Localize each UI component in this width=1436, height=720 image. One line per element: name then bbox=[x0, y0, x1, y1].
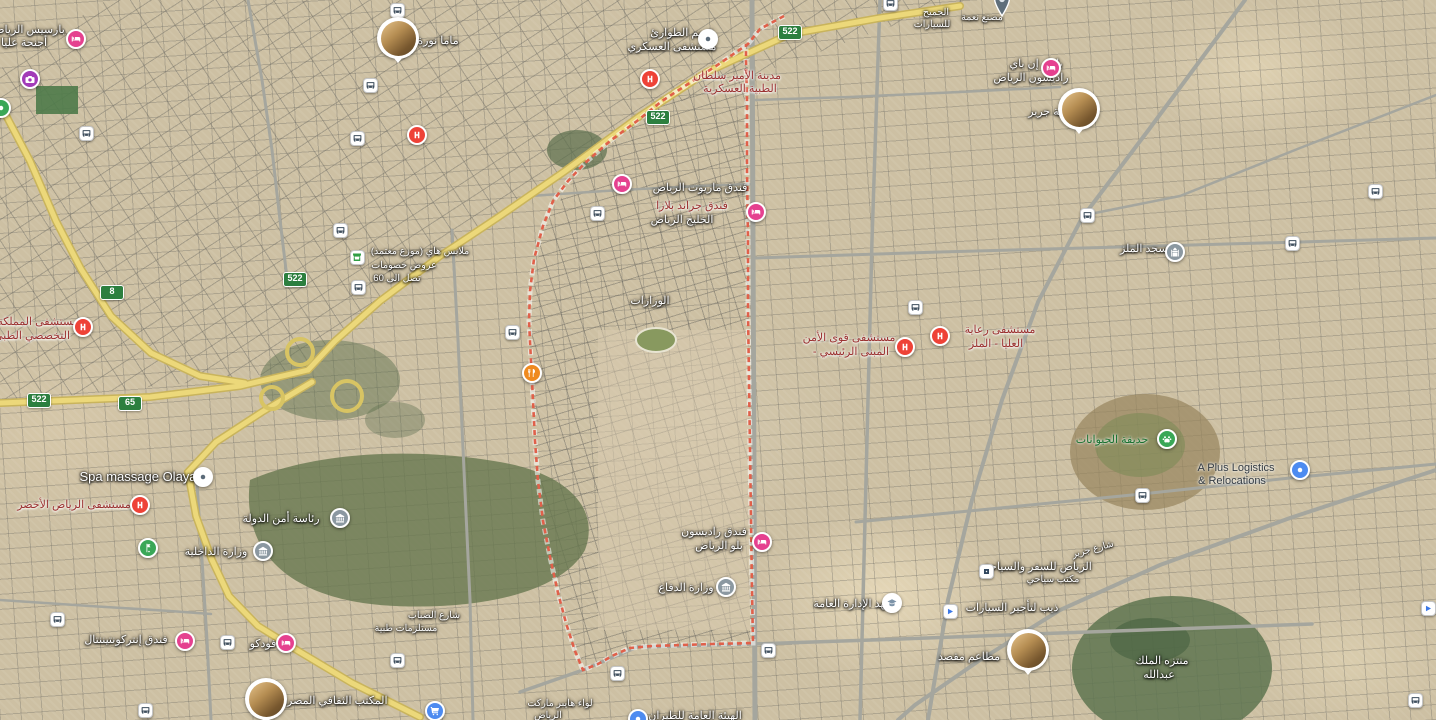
hospital-marker[interactable] bbox=[640, 69, 660, 89]
road-horizontal-northeast bbox=[753, 87, 1060, 100]
bus-stop-marker[interactable] bbox=[220, 635, 235, 650]
bus-icon bbox=[885, 0, 896, 9]
bus-stop-marker[interactable] bbox=[350, 131, 365, 146]
dot-icon bbox=[632, 713, 644, 720]
map-label: تصل الى 60 bbox=[373, 274, 420, 284]
bus-icon bbox=[507, 327, 518, 338]
hospital-h-icon bbox=[134, 499, 146, 511]
map-pin-icon bbox=[991, 0, 1013, 18]
map-label: ذيب لتأجير السيارات bbox=[966, 602, 1059, 614]
travel-marker[interactable] bbox=[979, 564, 994, 579]
bus-stop-marker[interactable] bbox=[79, 126, 94, 141]
bus-icon bbox=[81, 128, 92, 139]
hospital-h-icon bbox=[899, 341, 911, 353]
photo-marker[interactable] bbox=[1058, 88, 1100, 130]
bluedot-marker[interactable] bbox=[1290, 460, 1310, 480]
graduation-cap-icon bbox=[886, 597, 898, 609]
map-label: وزارة الداخلية bbox=[185, 546, 248, 558]
cursor-marker[interactable] bbox=[1421, 601, 1436, 616]
bus-stop-marker[interactable] bbox=[505, 325, 520, 340]
map-label: الطبية العسكرية bbox=[703, 83, 777, 95]
bus-icon bbox=[1410, 695, 1421, 706]
bus-icon bbox=[52, 614, 63, 625]
map-label: Spa massage Olaya bbox=[79, 470, 196, 484]
stadium bbox=[636, 328, 676, 352]
map-label: ملابس هاي (موزع معتمد) bbox=[371, 247, 469, 257]
bus-stop-marker[interactable] bbox=[610, 666, 625, 681]
route-shield-522: 522 bbox=[646, 110, 670, 125]
bus-stop-marker[interactable] bbox=[351, 280, 366, 295]
map-label: حديقة الحيوانات bbox=[1076, 434, 1149, 446]
dot-icon bbox=[197, 471, 209, 483]
bus-icon bbox=[592, 208, 603, 219]
restaurant-marker[interactable] bbox=[522, 363, 542, 383]
bus-stop-marker[interactable] bbox=[333, 223, 348, 238]
road-horizontal-southwest bbox=[0, 600, 211, 614]
navigation-arrow-icon bbox=[945, 606, 956, 617]
map-label: مستلزمات طبية bbox=[375, 624, 438, 634]
bus-icon bbox=[612, 668, 623, 679]
bus-stop-marker[interactable] bbox=[138, 703, 153, 718]
dot-icon bbox=[702, 33, 714, 45]
hospital-marker[interactable] bbox=[73, 317, 93, 337]
bus-stop-marker[interactable] bbox=[1080, 208, 1095, 223]
hospital-h-icon bbox=[934, 330, 946, 342]
bus-stop-marker[interactable] bbox=[1368, 184, 1383, 199]
bus-icon bbox=[1287, 238, 1298, 249]
golf-flag-icon bbox=[142, 542, 154, 554]
hospital-marker[interactable] bbox=[407, 125, 427, 145]
map-label: لواء هايبر ماركت bbox=[527, 699, 592, 709]
government-building-icon bbox=[334, 512, 346, 524]
photo-thumbnail bbox=[1062, 92, 1097, 127]
bus-icon bbox=[335, 225, 346, 236]
storefront-icon bbox=[351, 251, 363, 263]
whitepoi-marker[interactable] bbox=[698, 29, 718, 49]
whitepoi-marker[interactable] bbox=[193, 467, 213, 487]
bus-stop-marker[interactable] bbox=[908, 300, 923, 315]
bus-stop-marker[interactable] bbox=[883, 0, 898, 11]
road-vertical-west bbox=[196, 468, 211, 720]
map-label: فندق جراند بلازا bbox=[656, 200, 728, 212]
travel-agency-icon bbox=[981, 566, 992, 577]
bus-stop-marker[interactable] bbox=[363, 78, 378, 93]
cart-marker[interactable] bbox=[425, 701, 445, 720]
bus-stop-marker[interactable] bbox=[1408, 693, 1423, 708]
bus-stop-marker[interactable] bbox=[1285, 236, 1300, 251]
bus-icon bbox=[1370, 186, 1381, 197]
bus-stop-marker[interactable] bbox=[590, 206, 605, 221]
map-label: مستشفى قوى الأمن bbox=[803, 332, 896, 344]
photo-marker[interactable] bbox=[245, 678, 287, 720]
map-label: رئاسة أمن الدولة bbox=[242, 513, 319, 525]
bus-icon bbox=[392, 5, 403, 16]
photo-thumbnail bbox=[1011, 633, 1046, 668]
photo-marker[interactable] bbox=[377, 17, 419, 59]
map-label: الجميح bbox=[923, 8, 949, 18]
government-building-icon bbox=[257, 545, 269, 557]
hotel-marker[interactable] bbox=[276, 633, 296, 653]
map-label: المكتب الثقافي المصري bbox=[278, 695, 387, 707]
bed-icon bbox=[1045, 62, 1057, 74]
map-label: مستشفى رعاية bbox=[965, 324, 1036, 336]
bed-icon bbox=[179, 635, 191, 647]
mosque-marker[interactable] bbox=[1165, 242, 1185, 262]
bus-icon bbox=[352, 133, 363, 144]
road-diagonal-topright bbox=[1090, 95, 1436, 214]
road-vertical-east bbox=[860, 0, 880, 720]
route-shield-65: 65 bbox=[118, 396, 142, 411]
map-label: مطاعم مقصد bbox=[938, 651, 1000, 663]
golf-marker[interactable] bbox=[138, 538, 158, 558]
paw-icon bbox=[1161, 433, 1173, 445]
map-label: & Relocations bbox=[1198, 475, 1266, 487]
roads-and-terrain-layer bbox=[0, 0, 1436, 720]
shopping-cart-icon bbox=[429, 705, 441, 717]
bus-icon bbox=[1082, 210, 1093, 221]
photo-thumbnail bbox=[249, 682, 284, 717]
bus-icon bbox=[222, 637, 233, 648]
map-label: بلو الرياض bbox=[695, 540, 743, 552]
hotel-marker[interactable] bbox=[746, 202, 766, 222]
map-label: مكتب سياحي bbox=[1027, 575, 1080, 585]
government-building-icon bbox=[720, 581, 732, 593]
highway-522-casing bbox=[308, 6, 960, 370]
route-shield-8: 8 bbox=[100, 285, 124, 300]
bed-icon bbox=[750, 206, 762, 218]
route-shield-522: 522 bbox=[778, 25, 802, 40]
map-label: - المبنى الرئيسي bbox=[813, 346, 889, 358]
hospital-h-icon bbox=[411, 129, 423, 141]
map-label: منتزه الملك bbox=[1135, 655, 1188, 667]
gov-marker[interactable] bbox=[330, 508, 350, 528]
gov-marker[interactable] bbox=[253, 541, 273, 561]
map-label: شارع الضباب bbox=[408, 611, 460, 621]
hospital-marker[interactable] bbox=[930, 326, 950, 346]
map-label: مدينة الأمير سلطان bbox=[693, 70, 781, 82]
road-malaz-street bbox=[755, 238, 1436, 258]
hotel-marker[interactable] bbox=[175, 631, 195, 651]
map-label: العليا - الملز bbox=[969, 338, 1023, 350]
bus-stop-marker[interactable] bbox=[50, 612, 65, 627]
map-label: الرياض للسفر والسياحة bbox=[984, 561, 1092, 573]
interchange-greenery-2 bbox=[365, 402, 425, 438]
hotel-marker[interactable] bbox=[612, 174, 632, 194]
bed-icon bbox=[280, 637, 292, 649]
photo-marker[interactable] bbox=[1007, 629, 1049, 671]
hospital-h-icon bbox=[644, 73, 656, 85]
map-label: عبدالله bbox=[1143, 669, 1175, 681]
highway-522 bbox=[308, 6, 960, 370]
store-marker[interactable] bbox=[350, 250, 365, 265]
dot-icon bbox=[1294, 464, 1306, 476]
map-label: الرياض bbox=[534, 711, 562, 720]
map-label: فندق إنتركونتيننتال bbox=[84, 634, 167, 646]
hotel-marker[interactable] bbox=[1041, 58, 1061, 78]
map-label: فودكو bbox=[250, 638, 277, 650]
mosque-icon bbox=[1169, 246, 1181, 258]
bus-icon bbox=[763, 645, 774, 656]
cursor-marker[interactable] bbox=[943, 604, 958, 619]
map-label: ماما نورة bbox=[417, 35, 458, 47]
hospital-marker[interactable] bbox=[895, 337, 915, 357]
bus-stop-marker[interactable] bbox=[1135, 488, 1150, 503]
map-label: مستشفى الرياض الأخضر bbox=[17, 499, 131, 511]
camera-marker[interactable] bbox=[20, 69, 40, 89]
map-label: أجنحة عليا bbox=[1, 37, 47, 49]
map-label: التخصصي الطبي bbox=[0, 330, 70, 342]
hospital-h-icon bbox=[77, 321, 89, 333]
map-label: مستشفى المملكة bbox=[0, 316, 79, 328]
hotel-marker[interactable] bbox=[66, 29, 86, 49]
map-canvas[interactable]: بارسيس الرياضأجنحة علياماما نورةمصنع نعم… bbox=[0, 0, 1436, 720]
map-label: بارسيس الرياض bbox=[0, 24, 65, 36]
map-label: للسيارات bbox=[914, 20, 950, 30]
small-park bbox=[36, 86, 78, 114]
bus-icon bbox=[1137, 490, 1148, 501]
bus-stop-marker[interactable] bbox=[390, 653, 405, 668]
road-vertical-northwest bbox=[248, 0, 287, 278]
photo-thumbnail bbox=[381, 21, 416, 56]
pin-marker[interactable] bbox=[991, 0, 1013, 18]
navigation-arrow-icon bbox=[1423, 603, 1434, 614]
hospital-marker[interactable] bbox=[130, 495, 150, 515]
route-shield-522: 522 bbox=[27, 393, 51, 408]
zoo-marker[interactable] bbox=[1157, 429, 1177, 449]
grad-marker[interactable] bbox=[882, 593, 902, 613]
bus-icon bbox=[365, 80, 376, 91]
map-label: الوزارات bbox=[630, 295, 669, 307]
map-label: الخليج الرياض bbox=[651, 214, 714, 226]
hotel-marker[interactable] bbox=[752, 532, 772, 552]
camera-icon bbox=[24, 73, 36, 85]
route-shield-522: 522 bbox=[283, 272, 307, 287]
bed-icon bbox=[70, 33, 82, 45]
map-label: A Plus Logistics bbox=[1197, 462, 1274, 474]
map-label: وزارة الدفاع bbox=[658, 582, 713, 594]
bus-icon bbox=[353, 282, 364, 293]
bed-icon bbox=[616, 178, 628, 190]
bus-icon bbox=[910, 302, 921, 313]
map-label: الهيئة العامة للطيران bbox=[648, 710, 742, 720]
map-label: فندق ماريوت الرياض bbox=[653, 182, 748, 194]
bus-stop-marker[interactable] bbox=[390, 3, 405, 18]
restaurant-utensils-icon bbox=[526, 367, 538, 379]
bus-icon bbox=[392, 655, 403, 666]
gov-marker[interactable] bbox=[716, 577, 736, 597]
bus-stop-marker[interactable] bbox=[761, 643, 776, 658]
map-label: عروض خصومات bbox=[371, 261, 437, 271]
bus-icon bbox=[140, 705, 151, 716]
dot-icon bbox=[0, 102, 7, 114]
bed-icon bbox=[756, 536, 768, 548]
map-label: فندق راديسون bbox=[681, 526, 747, 538]
